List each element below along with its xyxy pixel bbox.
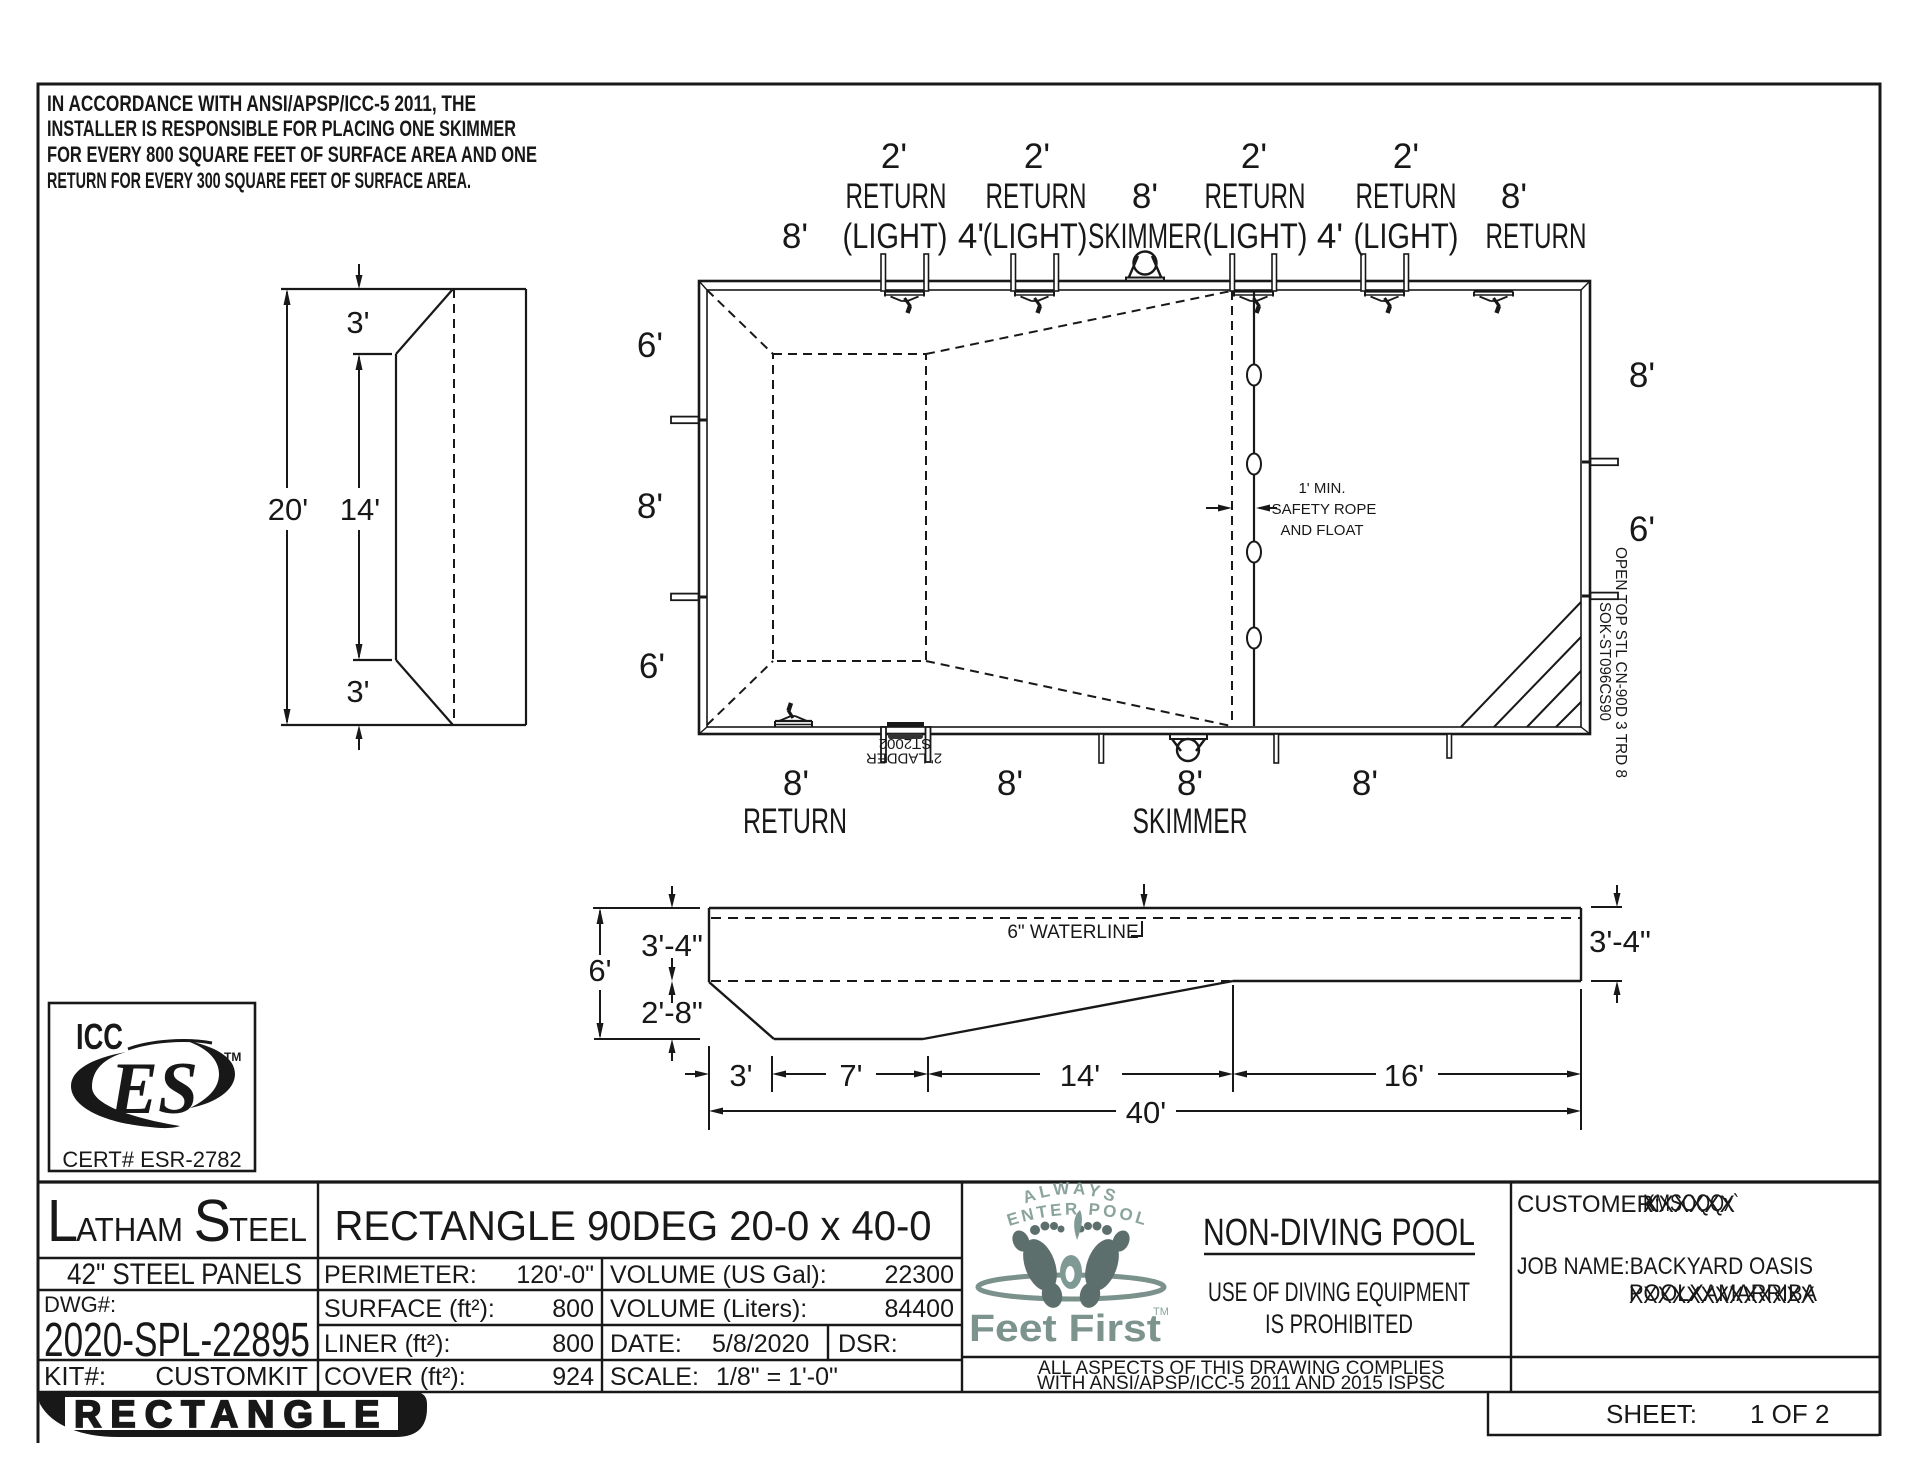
svg-text:22300: 22300 <box>884 1261 954 1289</box>
svg-text:800: 800 <box>552 1330 594 1358</box>
svg-text:924: 924 <box>552 1363 594 1391</box>
svg-text:8': 8' <box>637 487 663 526</box>
svg-text:6': 6' <box>1629 510 1655 549</box>
svg-text:SHEET:: SHEET: <box>1606 1399 1697 1429</box>
svg-text:PERIMETER:: PERIMETER: <box>324 1261 477 1289</box>
svg-text:3'-4": 3'-4" <box>641 928 703 963</box>
svg-text:TM: TM <box>224 1050 241 1064</box>
svg-text:6" WATERLINE: 6" WATERLINE <box>1007 922 1138 943</box>
svg-text:3': 3' <box>729 1058 752 1093</box>
svg-text:OPEN TOP STL CN-90D 3 TRD 8: OPEN TOP STL CN-90D 3 TRD 8 <box>1612 547 1629 778</box>
svg-text:RETURN: RETURN <box>1356 177 1457 216</box>
svg-text:3'-4": 3'-4" <box>1589 924 1651 959</box>
svg-text:8': 8' <box>1501 177 1527 216</box>
svg-text:IS PROHIBITED: IS PROHIBITED <box>1265 1309 1413 1339</box>
svg-text:8': 8' <box>782 217 808 256</box>
svg-text:120'-0": 120'-0" <box>516 1261 594 1289</box>
svg-text:(LIGHT): (LIGHT) <box>983 217 1088 256</box>
svg-text:84400: 84400 <box>884 1295 954 1323</box>
svg-text:XXXXXXXXXXXXX: XXXXXXXXXXXXX <box>1629 1282 1815 1309</box>
svg-text:RETURN: RETURN <box>986 177 1087 216</box>
svg-text:RECTANGLE 90DEG 20-0 x 40-0: RECTANGLE 90DEG 20-0 x 40-0 <box>335 1202 932 1249</box>
svg-text:KIT#:: KIT#: <box>44 1361 106 1391</box>
svg-text:40': 40' <box>1126 1095 1166 1130</box>
svg-text:SURFACE (ft²):: SURFACE (ft²): <box>324 1295 495 1323</box>
svg-text:2020-SPL-22895: 2020-SPL-22895 <box>44 1314 310 1367</box>
svg-text:DATE:: DATE: <box>610 1330 682 1358</box>
svg-text:2' LADDER: 2' LADDER <box>866 750 942 767</box>
svg-text:ST2002: ST2002 <box>879 735 932 752</box>
svg-text:VOLUME (US Gal):: VOLUME (US Gal): <box>610 1261 827 1289</box>
svg-text:1 OF 2: 1 OF 2 <box>1750 1399 1829 1429</box>
svg-text:COVER (ft²):: COVER (ft²): <box>324 1363 466 1391</box>
svg-text:NON-DIVING POOL: NON-DIVING POOL <box>1203 1212 1475 1254</box>
svg-text:WITH ANSI/APSP/ICC-5 2011 AND: WITH ANSI/APSP/ICC-5 2011 AND 2015 ISPSC <box>1037 1373 1445 1394</box>
svg-text:(LIGHT): (LIGHT) <box>1354 217 1459 256</box>
svg-text:ES: ES <box>109 1048 198 1130</box>
svg-text:20': 20' <box>268 492 308 527</box>
svg-text:CUSTOMER:: CUSTOMER: <box>1517 1191 1661 1218</box>
svg-text:SOK-ST096CS90: SOK-ST096CS90 <box>1596 602 1613 721</box>
svg-text:(LIGHT): (LIGHT) <box>1203 217 1308 256</box>
svg-text:VOLUME (Liters):: VOLUME (Liters): <box>610 1295 807 1323</box>
svg-text:XXXXXX: XXXXXX <box>1643 1191 1735 1218</box>
svg-text:3': 3' <box>346 674 369 709</box>
svg-text:CUSTOMKIT: CUSTOMKIT <box>155 1361 308 1391</box>
svg-text:7': 7' <box>839 1058 862 1093</box>
svg-text:4': 4' <box>958 217 984 256</box>
svg-text:SKIMMER: SKIMMER <box>1133 802 1248 841</box>
svg-text:8': 8' <box>1352 764 1378 803</box>
svg-text:16': 16' <box>1384 1058 1424 1093</box>
svg-text:RETURN FOR EVERY 300 SQUARE FE: RETURN FOR EVERY 300 SQUARE FEET OF SURF… <box>47 168 471 193</box>
svg-text:4': 4' <box>1317 217 1343 256</box>
svg-text:8': 8' <box>783 764 809 803</box>
svg-text:INSTALLER IS RESPONSIBLE FOR P: INSTALLER IS RESPONSIBLE FOR PLACING ONE… <box>47 116 516 141</box>
svg-text:2': 2' <box>1024 137 1050 176</box>
svg-text:8': 8' <box>1629 356 1655 395</box>
svg-text:JOB NAME:BACKYARD OASIS: JOB NAME:BACKYARD OASIS <box>1517 1253 1813 1280</box>
svg-text:IN ACCORDANCE WITH ANSI/APSP/I: IN ACCORDANCE WITH ANSI/APSP/ICC-5 2011,… <box>47 91 476 116</box>
svg-text:RECTANGLE: RECTANGLE <box>74 1394 386 1436</box>
svg-text:14': 14' <box>340 492 380 527</box>
svg-text:6': 6' <box>637 326 663 365</box>
svg-text:AND FLOAT: AND FLOAT <box>1280 522 1363 539</box>
svg-text:USE OF DIVING EQUIPMENT: USE OF DIVING EQUIPMENT <box>1208 1277 1470 1307</box>
svg-text:(LIGHT): (LIGHT) <box>843 217 948 256</box>
svg-text:RETURN: RETURN <box>1486 217 1587 256</box>
svg-text:2': 2' <box>1393 137 1419 176</box>
svg-text:8': 8' <box>997 764 1023 803</box>
svg-text:SCALE:: SCALE: <box>610 1363 699 1391</box>
svg-text:SKIMMER: SKIMMER <box>1088 217 1202 256</box>
svg-text:TM: TM <box>1153 1306 1169 1318</box>
svg-text:6': 6' <box>639 647 665 686</box>
svg-text:SAFETY ROPE: SAFETY ROPE <box>1272 501 1377 518</box>
svg-text:RETURN: RETURN <box>846 177 947 216</box>
svg-text:2'-8": 2'-8" <box>641 995 703 1030</box>
svg-text:3': 3' <box>346 305 369 340</box>
svg-text:DSR:: DSR: <box>838 1330 898 1358</box>
svg-text:8': 8' <box>1132 177 1158 216</box>
svg-text:8': 8' <box>1177 764 1203 803</box>
svg-text:LINER (ft²):: LINER (ft²): <box>324 1330 450 1358</box>
svg-text:42" STEEL PANELS: 42" STEEL PANELS <box>67 1258 302 1291</box>
svg-text:5/8/2020: 5/8/2020 <box>712 1330 809 1358</box>
svg-text:800: 800 <box>552 1295 594 1323</box>
svg-text:14': 14' <box>1060 1058 1100 1093</box>
svg-text:2': 2' <box>1241 137 1267 176</box>
svg-text:2': 2' <box>881 137 907 176</box>
svg-text:FOR EVERY 800 SQUARE FEET OF S: FOR EVERY 800 SQUARE FEET OF SURFACE ARE… <box>47 142 537 167</box>
svg-text:RETURN: RETURN <box>1205 177 1306 216</box>
svg-text:1' MIN.: 1' MIN. <box>1298 480 1345 497</box>
svg-text:1/8" = 1'-0": 1/8" = 1'-0" <box>716 1363 838 1391</box>
svg-text:6': 6' <box>588 953 611 988</box>
svg-text:CERT# ESR-2782: CERT# ESR-2782 <box>62 1147 241 1172</box>
svg-text:Feet First: Feet First <box>969 1308 1161 1350</box>
svg-text:RETURN: RETURN <box>743 802 847 841</box>
